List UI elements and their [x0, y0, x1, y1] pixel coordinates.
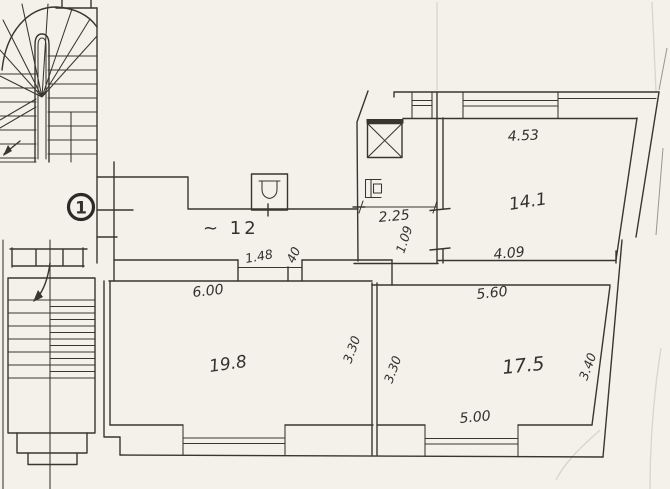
- dim-lobby-width: 2.25: [378, 207, 411, 226]
- dim-room3-area: 17.5: [501, 353, 545, 379]
- dim-room1-top: 4.53: [507, 127, 539, 145]
- dim-room2-top: 6.00: [192, 282, 225, 301]
- floor-plan-page: 1 ~ 12 1.48 40 2.25 1.09: [0, 0, 670, 489]
- dim-room3-bottom: 5.00: [459, 408, 492, 427]
- floor-plan-drawing: 1 ~ 12 1.48 40 2.25 1.09: [0, 0, 670, 489]
- dim-room3-top: 5.60: [476, 284, 509, 303]
- paper-background: [0, 0, 670, 489]
- dim-room1-bottom: 4.09: [493, 244, 526, 263]
- dim-corridor-area: ~ 12: [203, 218, 259, 239]
- marker-label: 1: [75, 199, 87, 219]
